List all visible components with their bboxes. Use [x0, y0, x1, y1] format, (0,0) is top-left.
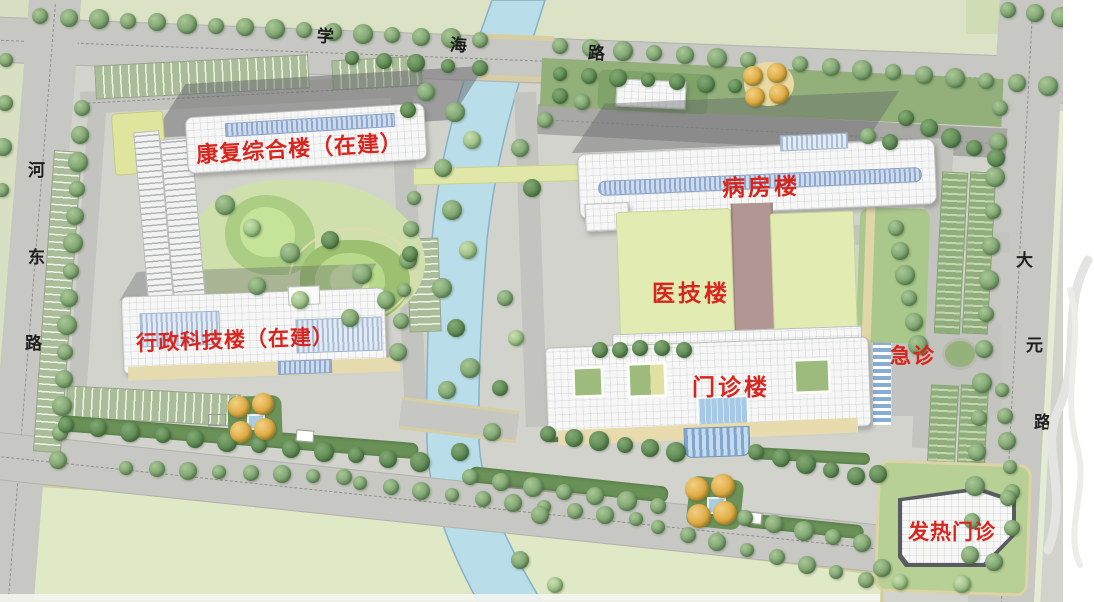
tree-icon [915, 66, 933, 84]
tree-icon [442, 200, 462, 220]
tree-icon [179, 462, 197, 480]
tree-icon [63, 233, 83, 253]
tree-icon [252, 393, 274, 415]
tree-icon [920, 119, 938, 137]
tree-icon [961, 546, 979, 564]
tree-icon [384, 27, 400, 43]
tree-icon [769, 84, 789, 104]
tree-icon [728, 79, 742, 93]
tree-icon [617, 491, 637, 511]
watermark [1030, 250, 1094, 570]
tree-icon [968, 443, 986, 461]
tree-icon [641, 73, 655, 87]
tree-icon [941, 128, 961, 148]
tree-icon [230, 421, 252, 443]
tree-icon [589, 431, 609, 451]
tree-icon [441, 59, 455, 73]
tree-icon [1008, 74, 1026, 92]
bottom-page-margin [0, 594, 880, 602]
tree-icon [873, 559, 891, 577]
tree-icon [492, 380, 508, 396]
tree-icon [547, 577, 563, 593]
tree-icon [553, 67, 567, 81]
tree-icon [412, 482, 430, 500]
tree-icon [1000, 490, 1016, 506]
tree-icon [531, 506, 549, 524]
tree-icon [945, 68, 965, 88]
tree-icon [314, 442, 334, 462]
tree-icon [60, 9, 78, 27]
tree-icon [60, 289, 78, 307]
tree-icon [212, 465, 226, 479]
tree-icon [987, 149, 1005, 167]
tree-icon [998, 432, 1016, 450]
tree-icon [888, 220, 904, 236]
ward-building-label: 病房楼 [722, 167, 801, 203]
tree-icon [445, 488, 459, 502]
tree-icon [248, 277, 266, 295]
tree-icon [972, 373, 992, 393]
tree-icon [511, 551, 529, 569]
tree-icon [403, 221, 419, 237]
site-plan-map: 学 海 路 河 东 路 大 元 路 康复综合楼（在建） 行政科技楼（在建） 病房… [0, 0, 1094, 602]
tree-icon [74, 100, 90, 116]
tree-icon [0, 53, 13, 67]
tree-icon [265, 19, 285, 39]
tree-icon [629, 512, 643, 526]
tree-icon [497, 290, 513, 306]
tree-icon [792, 56, 808, 72]
tree-icon [119, 461, 133, 475]
outpatient-building-label: 门诊楼 [692, 368, 770, 402]
tree-icon [592, 342, 608, 358]
tree-icon [650, 498, 666, 514]
tree-icon [352, 264, 372, 284]
tree-icon [306, 469, 320, 483]
tree-icon [666, 442, 686, 462]
tree-icon [829, 565, 843, 579]
tree-icon [609, 69, 627, 87]
tree-icon [748, 444, 764, 460]
tree-icon [965, 476, 985, 496]
tree-icon [882, 134, 898, 150]
tree-icon [885, 64, 901, 80]
tree-icon [794, 521, 814, 541]
tree-icon [148, 13, 166, 31]
tree-icon [434, 159, 452, 177]
tree-icon [713, 501, 737, 525]
tree-icon [377, 291, 395, 309]
tree-icon [822, 58, 840, 76]
tree-icon [858, 572, 874, 588]
tree-icon [55, 370, 73, 388]
tree-icon [853, 534, 871, 552]
tree-icon [552, 88, 568, 104]
tree-icon [66, 207, 84, 225]
tree-icon [89, 9, 109, 29]
tree-icon [451, 443, 469, 461]
tree-icon [565, 429, 583, 447]
tree-icon [273, 465, 291, 483]
tree-icon [707, 48, 727, 68]
xuehai-road-label-char3: 路 [587, 39, 605, 65]
tree-icon [52, 396, 72, 416]
tree-icon [540, 426, 556, 442]
tree-icon [552, 38, 568, 54]
tree-icon [0, 183, 9, 197]
tree-icon [979, 270, 999, 290]
tree-icon [462, 469, 478, 485]
tree-icon [208, 18, 224, 34]
tree-icon [120, 422, 140, 442]
tree-icon [953, 575, 971, 593]
tree-icon [901, 290, 917, 306]
hedong-road-label-char1: 河 [28, 156, 45, 181]
tree-icon [823, 462, 839, 478]
tree-icon [523, 477, 543, 497]
tree-icon [891, 242, 909, 260]
tree-icon [0, 95, 13, 111]
tree-icon [537, 112, 553, 128]
tree-icon [1038, 76, 1058, 96]
tree-icon [407, 54, 425, 72]
tree-icon [567, 503, 583, 519]
tree-icon [389, 343, 407, 361]
tree-icon [654, 340, 670, 356]
tree-icon [177, 14, 197, 34]
tree-icon [982, 237, 1000, 255]
tree-icon [651, 520, 665, 534]
tree-icon [676, 342, 692, 358]
tree-icon [410, 452, 430, 472]
tree-icon [697, 75, 715, 93]
tree-icon [685, 477, 709, 501]
tree-icon [89, 419, 107, 437]
tree-icon [483, 423, 501, 441]
tree-icon [617, 437, 633, 453]
tree-icon [772, 449, 790, 467]
tree-icon [765, 515, 783, 533]
tree-icon [1004, 520, 1020, 536]
tree-icon [1026, 4, 1044, 22]
tree-icon [447, 319, 465, 337]
tree-icon [847, 467, 865, 485]
tree-icon [1000, 2, 1016, 18]
tree-icon [228, 396, 250, 418]
tree-icon [985, 167, 1005, 187]
tree-icon [632, 340, 648, 356]
tree-icon [708, 533, 726, 551]
tree-icon [613, 41, 633, 61]
tree-icon [397, 283, 411, 297]
fever-clinic-label: 发热门诊 [908, 516, 996, 546]
tree-icon [992, 100, 1008, 116]
tree-icon [680, 527, 696, 543]
tree-icon [58, 417, 74, 433]
tree-icon [905, 313, 923, 331]
tree-icon [438, 381, 456, 399]
tree-icon [463, 131, 481, 149]
xuehai-road-label-char1: 学 [316, 22, 334, 48]
tree-icon [798, 556, 816, 574]
tree-icon [57, 315, 77, 335]
tree-icon [581, 68, 597, 84]
tree-icon [402, 246, 418, 262]
tree-icon [69, 181, 85, 197]
tree-icon [445, 102, 465, 122]
tree-icon [472, 32, 488, 48]
tree-icon [49, 451, 67, 469]
tree-icon [353, 24, 373, 44]
tree-icon [895, 265, 915, 285]
tree-icon [236, 18, 254, 36]
tree-icon [71, 126, 89, 144]
medtech-building-label: 医技楼 [652, 274, 730, 308]
tree-icon [975, 340, 993, 358]
tree-icon [243, 465, 259, 481]
tree-icon [393, 313, 409, 329]
tree-icon [769, 549, 785, 565]
tree-icon [400, 102, 416, 118]
tree-icon [407, 191, 421, 205]
tree-icon [186, 430, 204, 448]
tree-icon [341, 309, 359, 327]
tree-icon [978, 73, 994, 89]
emergency-label: 急诊 [890, 340, 936, 370]
tree-icon [215, 195, 235, 215]
tree-icon [711, 474, 735, 498]
tree-icon [852, 60, 872, 80]
tree-icon [291, 291, 309, 309]
tree-icon [472, 60, 488, 76]
tree-icon [646, 45, 662, 61]
tree-icon [596, 506, 614, 524]
tree-icon [475, 491, 491, 507]
tree-icon [687, 504, 711, 528]
tree-icon [966, 140, 982, 156]
xuehai-road-label-char2: 海 [449, 31, 467, 57]
tree-icon [321, 231, 339, 249]
tree-icon [0, 138, 12, 156]
tree-icon [120, 13, 136, 29]
tree-icon [745, 87, 765, 107]
tree-icon [796, 454, 816, 474]
tree-icon [1003, 460, 1017, 474]
tree-icon [383, 479, 399, 495]
tree-icon [336, 469, 352, 485]
hedong-road-label-char3: 路 [25, 329, 42, 354]
tree-icon [492, 473, 510, 491]
tree-icon [353, 476, 367, 490]
tree-icon [508, 330, 524, 346]
tree-icon [825, 529, 841, 545]
tree-icon [63, 263, 79, 279]
tree-icon [282, 440, 300, 458]
tree-icon [740, 543, 754, 557]
tree-icon [737, 510, 753, 526]
hedong-road-label-char2: 东 [28, 243, 45, 268]
tree-icon [32, 8, 48, 24]
tree-icon [669, 74, 685, 90]
tree-icon [155, 427, 171, 443]
tree-icon [296, 22, 312, 38]
tree-icon [641, 439, 659, 457]
tree-layer [0, 0, 1094, 602]
tree-icon [432, 278, 452, 298]
tree-icon [869, 465, 887, 483]
tree-icon [523, 179, 541, 197]
tree-icon [860, 128, 876, 144]
tree-icon [376, 53, 392, 69]
tree-icon [149, 461, 165, 477]
tree-icon [971, 410, 987, 426]
tree-icon [459, 241, 477, 259]
tree-icon [574, 94, 590, 110]
tree-icon [243, 219, 261, 237]
tree-icon [985, 203, 1001, 219]
tree-icon [57, 344, 73, 360]
tree-icon [898, 110, 914, 126]
tree-icon [556, 484, 572, 500]
tree-icon [676, 46, 694, 64]
tree-icon [612, 342, 628, 358]
tree-icon [504, 494, 522, 512]
tree-icon [68, 152, 88, 172]
tree-icon [767, 63, 787, 83]
tree-icon [348, 447, 364, 463]
tree-icon [254, 418, 276, 440]
tree-icon [417, 83, 435, 101]
tree-icon [995, 383, 1009, 397]
tree-icon [280, 243, 300, 263]
tree-icon [460, 358, 480, 378]
tree-icon [892, 574, 908, 590]
tree-icon [978, 306, 994, 322]
tree-icon [586, 487, 604, 505]
tree-icon [511, 139, 529, 157]
tree-icon [412, 28, 430, 46]
tree-icon [985, 553, 1003, 571]
tree-icon [345, 51, 359, 65]
tree-icon [379, 450, 397, 468]
tree-icon [997, 408, 1013, 424]
tree-icon [743, 66, 763, 86]
